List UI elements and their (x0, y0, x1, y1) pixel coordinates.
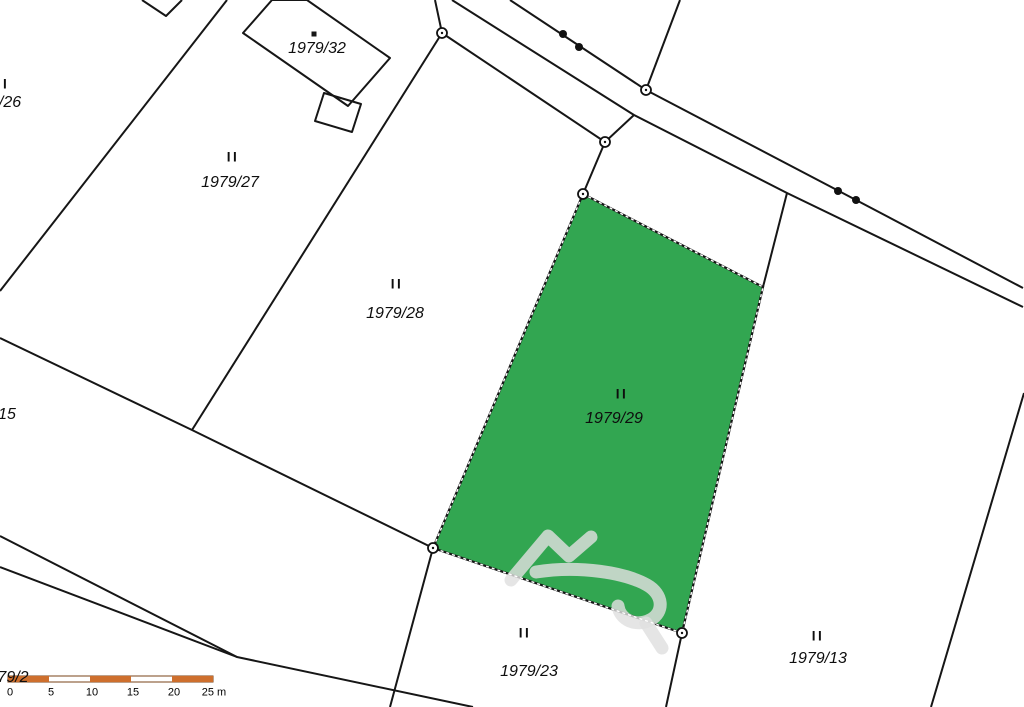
parcel-32-number: 1979/32 (288, 41, 346, 57)
scale-tick-15: 15 (127, 688, 139, 699)
parcel-27-number: 1979/27 (201, 175, 259, 191)
scale-tick-10: 10 (86, 688, 98, 699)
scale-tick-25m: 25 m (202, 688, 226, 699)
vertex-marker (641, 85, 651, 95)
scale-tick-0: 0 (7, 688, 13, 699)
cadastral-map: II /26 II 1979/27 II 1979/28 1979/32 15 … (0, 0, 1024, 707)
survey-dot (852, 196, 860, 204)
scale-tick-20: 20 (168, 688, 180, 699)
scale-bar-segment (172, 676, 213, 682)
parcel-26-landuse-marker: II (0, 77, 9, 91)
parcel-23-number: 1979/23 (500, 664, 558, 680)
survey-dot (834, 187, 842, 195)
parcel-23-landuse-marker: II (519, 626, 532, 640)
parcel-29-landuse-marker: II (616, 387, 629, 401)
scale-tick-5: 5 (48, 688, 54, 699)
survey-dot (575, 43, 583, 51)
building-point-symbol (312, 32, 317, 37)
vertex-marker (437, 28, 447, 38)
parcel-15-number: 15 (0, 407, 16, 423)
vertex-marker (677, 628, 687, 638)
parcel-27-landuse-marker: II (227, 150, 240, 164)
vertex-marker (428, 543, 438, 553)
map-drawing (0, 0, 1024, 707)
parcel-28-number: 1979/28 (366, 306, 424, 322)
map-background (0, 0, 1024, 707)
survey-dot (559, 30, 567, 38)
parcel-28-landuse-marker: II (391, 277, 404, 291)
parcel-26-number: /26 (0, 95, 21, 111)
vertex-marker (600, 137, 610, 147)
parcel-79-2-number: 79/2 (0, 670, 29, 686)
vertex-marker (578, 189, 588, 199)
parcel-29-number: 1979/29 (585, 411, 643, 427)
scale-bar-segment (90, 676, 131, 682)
parcel-13-number: 1979/13 (789, 651, 847, 667)
scale-bar (8, 676, 213, 682)
parcel-13-landuse-marker: II (812, 629, 825, 643)
